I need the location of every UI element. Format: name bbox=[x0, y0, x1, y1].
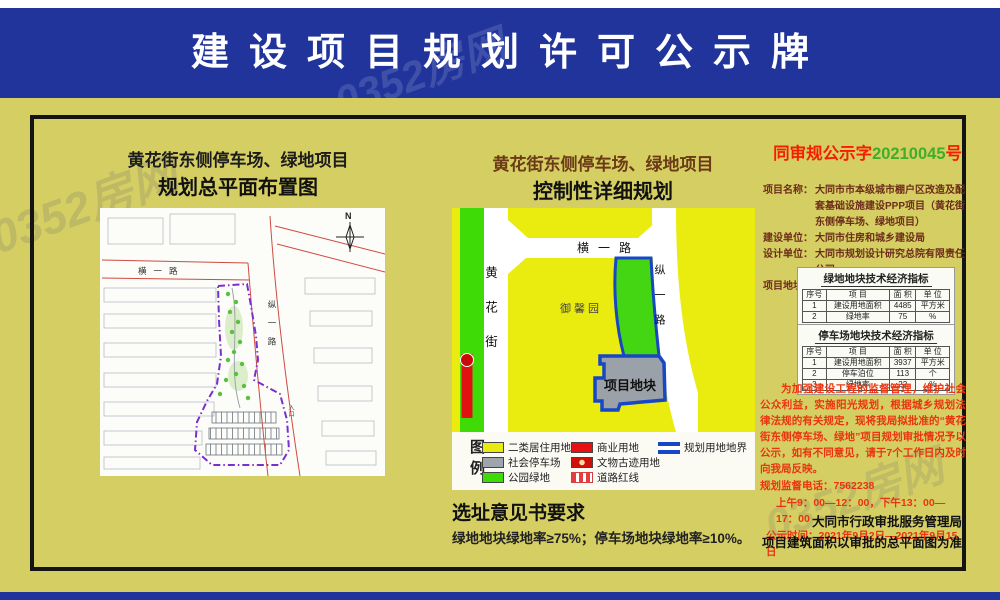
econ-indicator-table: 序号项 目面 积单 位1建设用地面积4485平方米2绿地率75% bbox=[802, 289, 950, 323]
zoning-svg: 横一路 黄花街 纵一路 御馨园 项目地块 bbox=[452, 208, 755, 432]
table-cell: 1 bbox=[803, 358, 827, 369]
site-requirements-text: 绿地地块绿地率≥75%；停车场地块绿地率≥10%。 bbox=[452, 527, 750, 547]
yellow-swatch bbox=[482, 442, 504, 453]
table-title: 停车场地块技术经济指标 bbox=[815, 328, 937, 344]
site-requirements-title: 选址意见书要求 bbox=[452, 498, 585, 525]
middle-panel-subtitle: 控制性详细规划 bbox=[448, 175, 758, 204]
master-plan-map: 横一路 纵一路 入口 bbox=[100, 208, 385, 476]
table-row: 2停车泊位113个 bbox=[803, 369, 950, 380]
road-label-horizontal: 横一路 bbox=[138, 266, 185, 276]
legend-item: 商业用地 bbox=[571, 441, 639, 454]
redline-swatch bbox=[571, 472, 593, 483]
legend-item: 道路红线 bbox=[571, 471, 639, 484]
table-header-cell: 序号 bbox=[803, 290, 827, 301]
legend-label: 二类居住用地 bbox=[508, 440, 571, 455]
green-swatch bbox=[482, 472, 504, 483]
table-header-cell: 序号 bbox=[803, 347, 827, 358]
table-cell: 建设用地面积 bbox=[826, 301, 889, 312]
table-cell: 平方米 bbox=[916, 358, 950, 369]
north-label: N bbox=[345, 211, 352, 221]
notice-paragraph: 为加强建设工程的监督管理，维护社会公众利益，实施阳光规划，根据城乡规划法律法规的… bbox=[760, 381, 966, 477]
info-label: 项目名称： bbox=[763, 183, 815, 231]
table-cell: 2 bbox=[803, 369, 827, 380]
econ-table: 绿地地块技术经济指标序号项 目面 积单 位1建设用地面积4485平方米2绿地率7… bbox=[797, 267, 955, 327]
table-header-cell: 面 积 bbox=[890, 290, 916, 301]
table-cell: 1 bbox=[803, 301, 827, 312]
project-site-label: 项目地块 bbox=[604, 378, 657, 393]
table-cell: 113 bbox=[890, 369, 916, 380]
table-cell: 2 bbox=[803, 312, 827, 323]
legend-label: 道路红线 bbox=[597, 470, 639, 485]
table-row: 1建设用地面积4485平方米 bbox=[803, 301, 950, 312]
header-banner: 建设项目规划许可公示牌 0352房网 bbox=[0, 8, 1000, 98]
issuer-line: 项目建筑面积以审批的总平面图为准 bbox=[740, 533, 962, 554]
page-title: 建设项目规划许可公示牌 bbox=[0, 8, 1000, 98]
info-line: 建设单位：大同市住房和城乡建设局 bbox=[763, 231, 965, 247]
legend-label: 公园绿地 bbox=[508, 470, 550, 485]
info-line: 项目名称：大同市市本级城市棚户区改造及配套基础设施建设PPP项目（黄花街东侧停车… bbox=[763, 183, 965, 231]
table-cell: 个 bbox=[916, 369, 950, 380]
info-value: 大同市住房和城乡建设局 bbox=[815, 231, 965, 247]
road-right-label: 纵一路 bbox=[653, 264, 666, 339]
table-cell: 绿地率 bbox=[826, 312, 889, 323]
table-header-row: 序号项 目面 积单 位 bbox=[803, 290, 950, 301]
parking-rows bbox=[206, 412, 282, 455]
legend-item: 二类居住用地 bbox=[482, 441, 571, 454]
table-cell: 建设用地面积 bbox=[826, 358, 889, 369]
info-label: 建设单位： bbox=[763, 231, 815, 247]
table-header-cell: 面 积 bbox=[890, 347, 916, 358]
table-row: 1建设用地面积3937平方米 bbox=[803, 358, 950, 369]
notice-number: 同审规公示字20210045号 bbox=[758, 140, 962, 164]
legend-item: 社会停车场 bbox=[482, 456, 561, 469]
legend-label: 商业用地 bbox=[597, 440, 639, 455]
issuer-line: 大同市行政审批服务管理局 bbox=[740, 512, 962, 533]
table-header-cell: 项 目 bbox=[826, 290, 889, 301]
table-cell: 平方米 bbox=[916, 301, 950, 312]
table-header-cell: 项 目 bbox=[826, 347, 889, 358]
left-panel-title: 黄花街东侧停车场、绿地项目 bbox=[78, 146, 398, 171]
table-header-cell: 单 位 bbox=[916, 290, 950, 301]
bottom-bar bbox=[0, 592, 1000, 600]
legend-label: 社会停车场 bbox=[508, 455, 561, 470]
issuer-block: 大同市行政审批服务管理局项目建筑面积以审批的总平面图为准 bbox=[740, 512, 962, 554]
info-value: 大同市市本级城市棚户区改造及配套基础设施建设PPP项目（黄花街东侧停车场、绿地项… bbox=[815, 183, 965, 231]
notice-number-suffix: 号 bbox=[946, 145, 963, 163]
relic-swatch bbox=[571, 457, 593, 468]
table-header-cell: 单 位 bbox=[916, 347, 950, 358]
table-cell: 4485 bbox=[890, 301, 916, 312]
relic-site-icon bbox=[461, 354, 474, 367]
table-cell: 75 bbox=[890, 312, 916, 323]
road-top-label: 横一路 bbox=[577, 240, 640, 255]
middle-panel-title: 黄花街东侧停车场、绿地项目 bbox=[448, 150, 758, 175]
street-left-label: 黄花街 bbox=[483, 266, 497, 370]
table-cell: % bbox=[916, 312, 950, 323]
notice-number-prefix: 同审规公示字 bbox=[773, 145, 872, 163]
notice-number-digits: 20210045 bbox=[872, 145, 945, 163]
table-cell: 停车泊位 bbox=[826, 369, 889, 380]
map-legend: 图例 二类居住用地社会停车场公园绿地商业用地文物古迹用地道路红线规划用地地界 bbox=[452, 432, 755, 490]
phone-line: 规划监督电话：7562238 bbox=[760, 478, 966, 494]
legend-item: 文物古迹用地 bbox=[571, 456, 660, 469]
road-label-vertical: 纵一路 bbox=[267, 300, 277, 356]
table-row: 2绿地率75% bbox=[803, 312, 950, 323]
boundary-swatch bbox=[658, 442, 680, 454]
master-plan-svg: 横一路 纵一路 入口 bbox=[100, 208, 385, 476]
legend-item: 公园绿地 bbox=[482, 471, 550, 484]
legend-item: 规划用地地界 bbox=[658, 441, 747, 454]
left-panel-subtitle: 规划总平面布置图 bbox=[78, 171, 398, 200]
table-title: 绿地地块技术经济指标 bbox=[821, 271, 932, 287]
red-swatch bbox=[571, 442, 593, 453]
legend-label: 文物古迹用地 bbox=[597, 455, 660, 470]
zoning-map: 横一路 黄花街 纵一路 御馨园 项目地块 bbox=[452, 208, 755, 432]
legend-label: 规划用地地界 bbox=[684, 440, 747, 455]
table-cell: 3937 bbox=[890, 358, 916, 369]
estate-label: 御馨园 bbox=[560, 301, 602, 315]
gray-swatch bbox=[482, 457, 504, 468]
table-header-row: 序号项 目面 积单 位 bbox=[803, 347, 950, 358]
